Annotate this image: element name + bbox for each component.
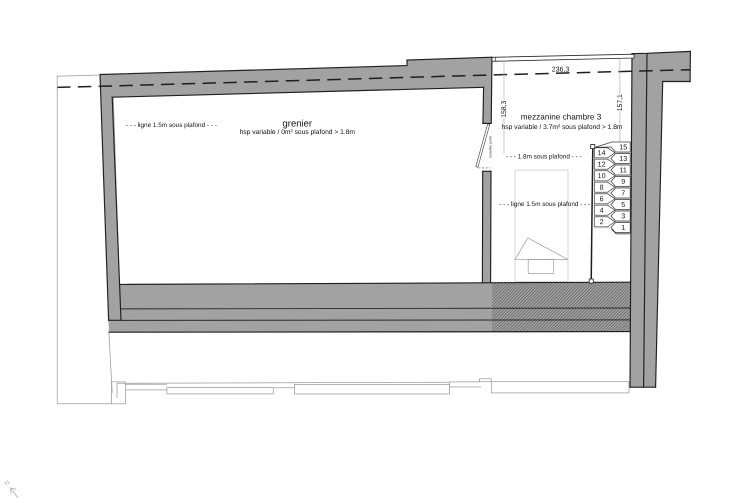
svg-text:2: 2 [600,218,604,226]
svg-text:14: 14 [598,149,606,157]
svg-text:- - - ligne 1.5m sous plafond: - - - ligne 1.5m sous plafond - - - [499,201,590,208]
svg-text:mezzanine chambre 3: mezzanine chambre 3 [521,113,602,122]
svg-text:4: 4 [600,207,604,215]
svg-text:- - - 1.8m sous plafond - - -: - - - 1.8m sous plafond - - - [506,153,582,160]
svg-text:5: 5 [621,201,625,209]
svg-text:6: 6 [600,195,604,203]
svg-text:3: 3 [621,212,625,220]
svg-text:1: 1 [621,224,625,232]
svg-text:11: 11 [620,166,627,174]
svg-text:10: 10 [598,172,606,180]
svg-text:9: 9 [621,178,625,186]
svg-text:7: 7 [621,189,625,197]
svg-text:hsp variable / 0m² sous plafon: hsp variable / 0m² sous plafond > 1.8m [240,129,356,136]
svg-text:13: 13 [619,155,627,163]
svg-text:15: 15 [619,143,627,151]
svg-text:nouvelle porte: nouvelle porte [489,136,493,159]
svg-text:157,1: 157,1 [617,94,624,111]
svg-text:158,3: 158,3 [501,100,508,117]
svg-text:236,3: 236,3 [552,67,570,74]
svg-text:8: 8 [600,184,604,192]
svg-text:grenier: grenier [283,118,313,129]
svg-text:hsp variable / 3.7m² sous plaf: hsp variable / 3.7m² sous plafond > 1.8m [502,124,623,131]
svg-text:12: 12 [598,161,606,169]
svg-text:- - - ligne 1.5m sous plafond: - - - ligne 1.5m sous plafond - - - [126,122,217,129]
